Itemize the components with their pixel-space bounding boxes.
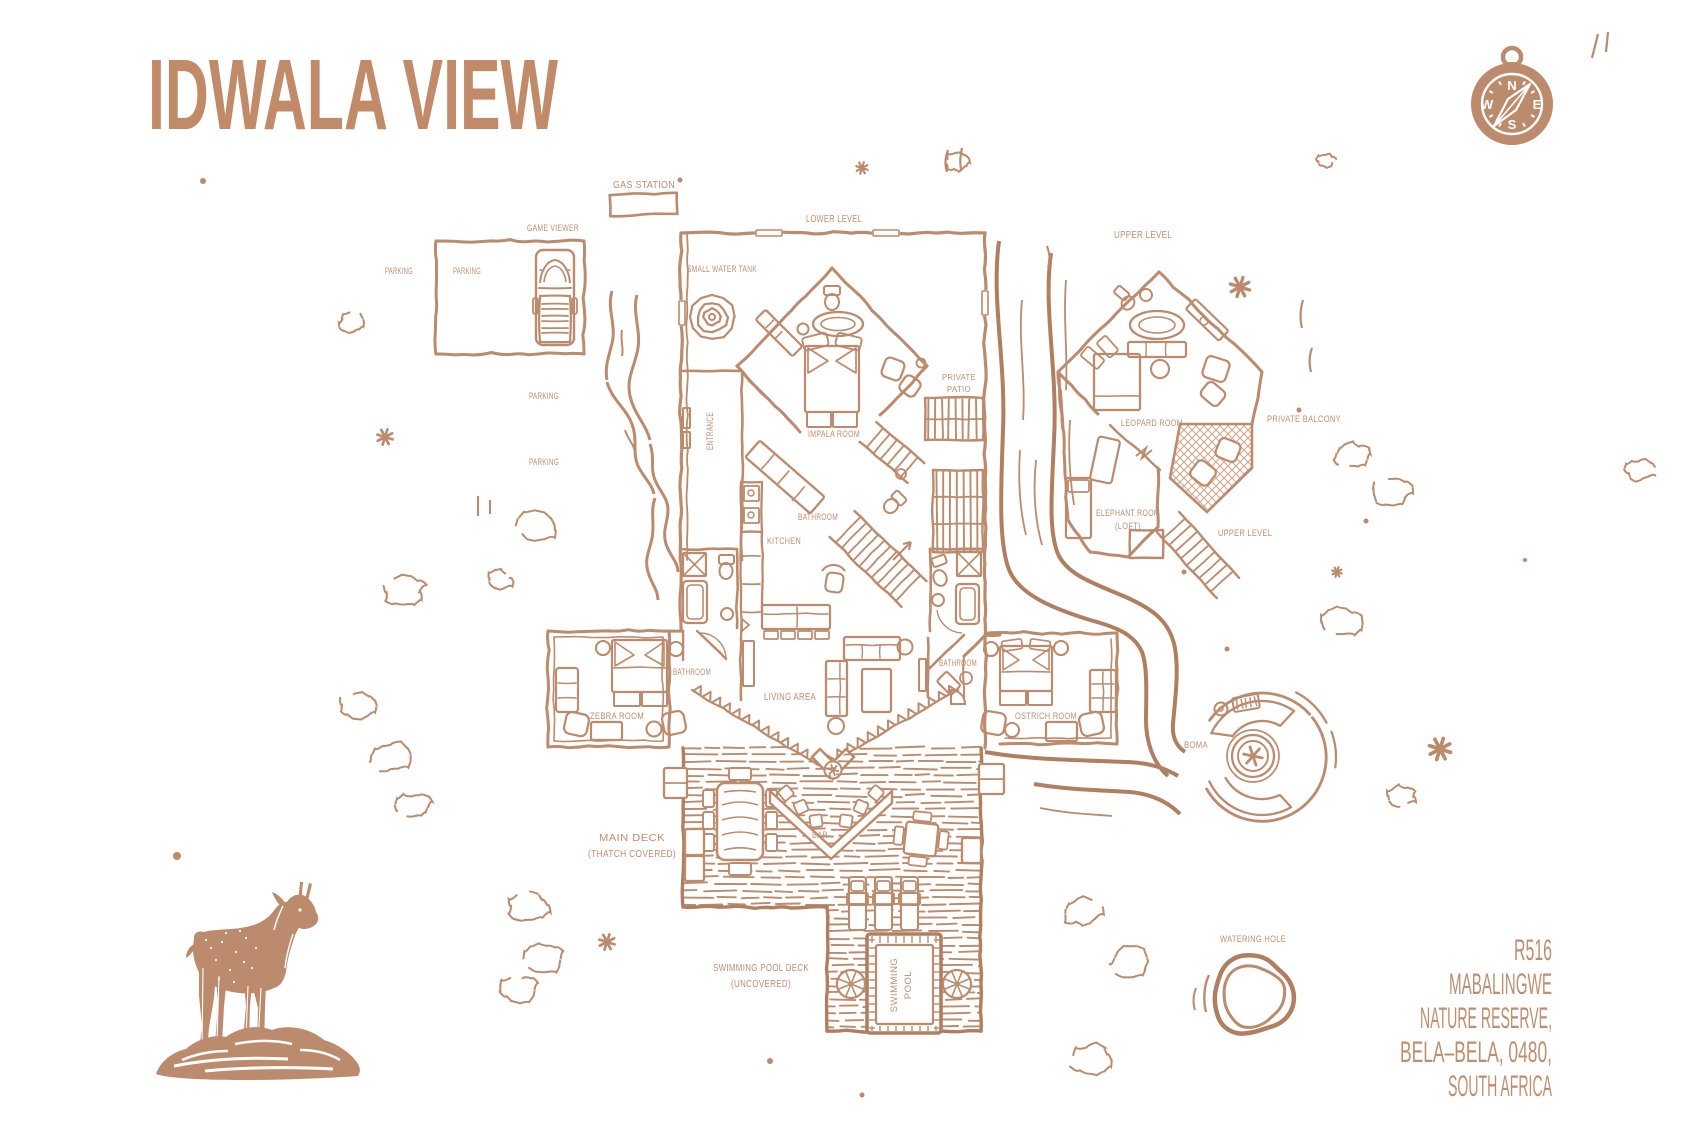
- svg-text:BOMA: BOMA: [1184, 740, 1208, 751]
- svg-text:S: S: [1508, 117, 1517, 132]
- svg-text:W: W: [1481, 97, 1494, 112]
- svg-text:LOWER LEVEL: LOWER LEVEL: [806, 213, 862, 225]
- svg-text:SWIMMING POOL DECK: SWIMMING POOL DECK: [713, 963, 809, 974]
- svg-text:WATERING HOLE: WATERING HOLE: [1220, 934, 1286, 945]
- svg-text:PATIO: PATIO: [947, 384, 971, 394]
- svg-text:E: E: [1533, 97, 1542, 112]
- svg-text:N: N: [1507, 78, 1516, 93]
- svg-text:POOL: POOL: [903, 971, 914, 999]
- svg-text:PARKING: PARKING: [385, 266, 413, 276]
- svg-text:PARKING: PARKING: [529, 391, 559, 401]
- svg-text:GAME VIEWER: GAME VIEWER: [527, 223, 579, 234]
- svg-text:BATHROOM: BATHROOM: [798, 512, 838, 523]
- svg-text:MAIN DECK: MAIN DECK: [599, 833, 665, 844]
- svg-text:UPPER LEVEL: UPPER LEVEL: [1218, 528, 1272, 539]
- svg-text:IDWALA VIEW: IDWALA VIEW: [148, 39, 558, 151]
- svg-text:LIVING AREA: LIVING AREA: [764, 692, 816, 703]
- svg-text:ELEPHANT ROOM: ELEPHANT ROOM: [1096, 508, 1160, 518]
- svg-text:GAS STATION: GAS STATION: [613, 179, 675, 191]
- svg-text:(UNCOVERED): (UNCOVERED): [731, 979, 791, 990]
- svg-text:PRIVATE: PRIVATE: [942, 372, 976, 382]
- svg-text:ENTRANCE: ENTRANCE: [705, 412, 715, 450]
- svg-text:BAR: BAR: [812, 830, 828, 840]
- svg-text:SMALL WATER TANK: SMALL WATER TANK: [687, 264, 757, 274]
- svg-text:PARKING: PARKING: [453, 266, 481, 276]
- svg-text:KITCHEN: KITCHEN: [767, 536, 801, 547]
- svg-text:SWIMMING: SWIMMING: [889, 958, 900, 1013]
- svg-text:SOUTH AFRICA: SOUTH AFRICA: [1448, 1070, 1552, 1103]
- svg-text:PARKING: PARKING: [529, 457, 559, 467]
- svg-text:R516: R516: [1514, 934, 1552, 967]
- svg-text:MABALINGWE: MABALINGWE: [1449, 968, 1552, 1001]
- svg-text:BATHROOM: BATHROOM: [673, 667, 711, 677]
- svg-text:IMPALA ROOM: IMPALA ROOM: [808, 429, 860, 440]
- svg-text:BELA–BELA, 0480,: BELA–BELA, 0480,: [1400, 1036, 1552, 1069]
- svg-text:ZEBRA ROOM: ZEBRA ROOM: [590, 711, 644, 722]
- svg-text:OSTRICH ROOM: OSTRICH ROOM: [1015, 711, 1077, 722]
- svg-text:BATHROOM: BATHROOM: [939, 658, 977, 668]
- svg-text:PRIVATE BALCONY: PRIVATE BALCONY: [1267, 414, 1341, 425]
- svg-text:NATURE RESERVE,: NATURE RESERVE,: [1420, 1002, 1552, 1035]
- svg-text:UPPER LEVEL: UPPER LEVEL: [1114, 229, 1172, 241]
- svg-text:(THATCH COVERED): (THATCH COVERED): [588, 849, 676, 860]
- svg-text:LEOPARD ROOM: LEOPARD ROOM: [1121, 418, 1183, 429]
